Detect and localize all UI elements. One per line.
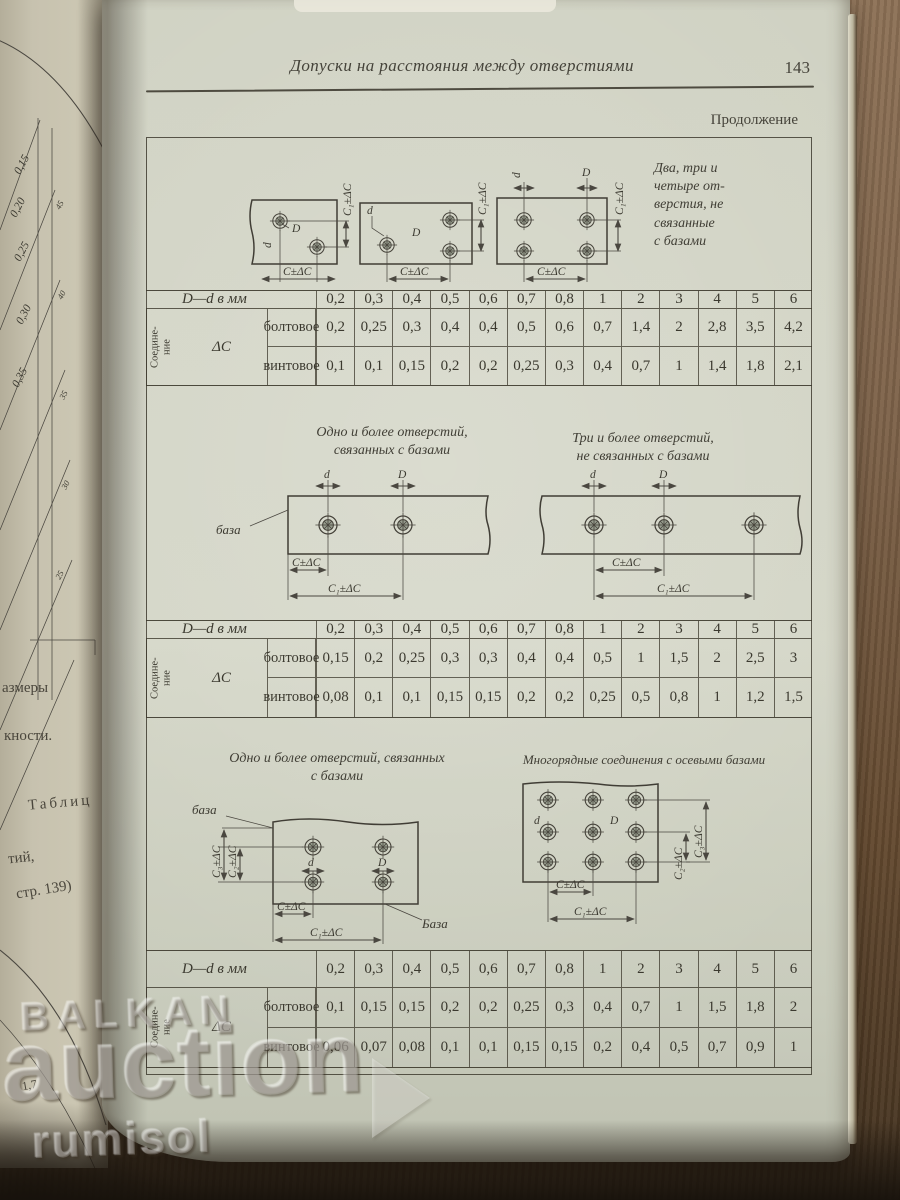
table-cell: 4,2: [774, 309, 812, 347]
table-cell: 1: [774, 1028, 812, 1067]
table-cell: 2: [621, 621, 659, 638]
left-fragment: азмеры: [2, 680, 48, 697]
table-cell: 0,4: [392, 291, 430, 308]
table-cell: 0,5: [659, 1028, 697, 1067]
table-cell: 1: [659, 988, 697, 1028]
continuation-label: Продолжение: [711, 112, 798, 129]
table-cell: 1,5: [774, 678, 812, 717]
table-cell: 0,3: [430, 639, 468, 678]
table-cell: 6: [774, 621, 812, 638]
dim-D: D: [658, 469, 668, 481]
table-cell: 0,2: [316, 621, 354, 638]
table-cell: 0,1: [392, 678, 430, 717]
table-cell: 5: [736, 291, 774, 308]
table-cell: 1,5: [659, 639, 697, 678]
table-cell: 3: [774, 639, 812, 678]
table-cell: 0,3: [545, 347, 583, 385]
table-cell: 0,7: [621, 988, 659, 1028]
dim-c: C±ΔC: [556, 879, 585, 891]
dim-c2: C₂±ΔC: [227, 845, 239, 878]
table-cell: 2: [621, 951, 659, 987]
table-cell: 0,25: [507, 988, 545, 1028]
dim-c2: C₂±ΔC: [673, 847, 685, 880]
table-cell: 0,8: [545, 951, 583, 987]
header-label: D—d в мм: [146, 621, 316, 638]
table-cell: 0,6: [469, 291, 507, 308]
left-fragment: 1,7: [21, 1077, 38, 1094]
row-values-vint: 0,060,070,080,10,10,150,150,20,40,50,70,…: [316, 1028, 812, 1067]
table-cell: 0,2: [354, 639, 392, 678]
table-cell: 0,2: [430, 988, 468, 1028]
table-cell: 4: [698, 951, 736, 987]
previous-page-diagram: 0,15 0,20 0,25 0,30 0,35 45 40 35 30 25: [0, 0, 108, 1168]
table-cell: 5: [736, 621, 774, 638]
table-cell: 0,6: [545, 309, 583, 347]
table-cell: 0,3: [392, 309, 430, 347]
dim-D: D: [291, 223, 301, 235]
base-cap-label: База: [421, 916, 448, 931]
dim-c1: C₁±ΔC: [328, 583, 361, 595]
dim-c1: C₁±ΔC: [310, 927, 343, 939]
table-cell: 6: [774, 951, 812, 987]
dim-c1: C₁±ΔC: [342, 183, 354, 216]
table-cell: 0,15: [469, 678, 507, 717]
header-values: 0,20,30,40,50,60,70,8123456: [316, 291, 812, 308]
table-cell: 3,5: [736, 309, 774, 347]
table-cell: 3: [659, 291, 697, 308]
table-cell: 0,4: [430, 309, 468, 347]
caption-section2-right: Три и более отверстий, не связанных с ба…: [528, 430, 758, 466]
table-cell: 0,25: [507, 347, 545, 385]
base-label: база: [216, 522, 241, 537]
table-cell: 0,2: [316, 309, 354, 347]
table-cell: 0,2: [583, 1028, 621, 1067]
table-cell: 0,2: [316, 951, 354, 987]
table-cell: 0,4: [545, 639, 583, 678]
book-fore-edge: [848, 14, 857, 1144]
table-cell: 0,1: [316, 347, 354, 385]
table-cell: 0,2: [469, 988, 507, 1028]
row-label-vint: винтовое: [268, 1028, 316, 1067]
table-cell: 1: [583, 951, 621, 987]
table-cell: 0,4: [392, 951, 430, 987]
tolerance-table-1: D—d в мм 0,20,30,40,50,60,70,8123456 Сое…: [146, 290, 812, 386]
table-cell: 1,4: [621, 309, 659, 347]
dim-c1: C₁±ΔC: [477, 182, 489, 215]
diagram-four-holes-two-bases: база База d D C₂±ΔC C₃±ΔC C±ΔC C₁±ΔC: [178, 792, 508, 948]
table-cell: 0,3: [354, 951, 392, 987]
table-cell: 0,7: [698, 1028, 736, 1067]
diagram-holes-with-base: база d D C±ΔC C₁±ΔC: [188, 468, 508, 614]
table-body: Соедине- ние болтовое ΔC 0,150,20,250,30…: [146, 639, 812, 717]
table-cell: 5: [736, 951, 774, 987]
table-cell: 0,3: [354, 291, 392, 308]
header-values: 0,20,30,40,50,60,70,8123456: [316, 621, 812, 638]
dim-d: d: [308, 857, 314, 869]
table-cell: 0,8: [545, 621, 583, 638]
header-label: D—d в мм: [146, 951, 316, 987]
table-cell: 0,6: [469, 951, 507, 987]
table-cell: 0,1: [316, 988, 354, 1028]
table-cell: 0,2: [316, 291, 354, 308]
table-cell: 0,8: [659, 678, 697, 717]
table-cell: 0,1: [469, 1028, 507, 1067]
table-cell: 1,8: [736, 988, 774, 1028]
table-cell: 0,1: [354, 678, 392, 717]
table-cell: 0,3: [469, 639, 507, 678]
table-cell: 0,15: [316, 639, 354, 678]
caption-section1: Два, три и четыре от- верстия, не связан…: [654, 160, 789, 251]
table-cell: 0,4: [392, 621, 430, 638]
caption-section3-right: Многорядные соединения с осевыми базами: [494, 752, 794, 769]
table-cell: 0,15: [354, 988, 392, 1028]
table-cell: 0,15: [392, 988, 430, 1028]
table-cell: 0,1: [354, 347, 392, 385]
table-cell: 2: [698, 639, 736, 678]
left-fragment: кности.: [4, 728, 52, 745]
table-cell: 0,15: [392, 347, 430, 385]
table-cell: 0,8: [545, 291, 583, 308]
table-cell: 0,2: [430, 347, 468, 385]
table-cell: 0,4: [507, 639, 545, 678]
header-rule: [146, 86, 814, 93]
left-tick: 0,15: [12, 153, 32, 177]
table-cell: 2,1: [774, 347, 812, 385]
left-small-tick: 35: [56, 389, 69, 402]
left-fragment: тий,: [7, 849, 35, 869]
table-cell: 0,08: [316, 678, 354, 717]
dim-c: C±ΔC: [277, 901, 306, 913]
row-values-vint: 0,080,10,10,150,150,20,20,250,50,811,21,…: [316, 678, 812, 717]
delta-c-label: ΔC: [176, 639, 268, 717]
caption-section3-left: Одно и более отверстий, связанных с база…: [192, 750, 482, 786]
table-cell: 2,8: [698, 309, 736, 347]
delta-c-label: ΔC: [176, 988, 268, 1067]
table-cell: 0,9: [736, 1028, 774, 1067]
table-cell: 0,7: [583, 309, 621, 347]
page-number: 143: [785, 58, 811, 78]
table-cell: 0,15: [507, 1028, 545, 1067]
table-cell: 2: [659, 309, 697, 347]
table-header-row: D—d в мм 0,20,30,40,50,60,70,8123456: [146, 951, 812, 988]
dim-d: d: [324, 469, 330, 481]
dim-D: D: [411, 227, 421, 239]
group-label: Соедине- ние: [146, 309, 176, 385]
table-cell: 1: [583, 621, 621, 638]
dim-c: C±ΔC: [292, 557, 321, 569]
group-label: Соедине- ние: [146, 639, 176, 717]
table-cell: 3: [659, 951, 697, 987]
table-cell: 0,4: [469, 309, 507, 347]
table-cell: 0,7: [507, 621, 545, 638]
row-label-bolt: болтовое: [268, 309, 316, 347]
book-photo: { "page": { "running_title": "Допуски на…: [0, 0, 900, 1200]
dim-c: C±ΔC: [283, 266, 312, 278]
dim-D: D: [609, 815, 619, 827]
table-cell: 0,7: [621, 347, 659, 385]
table-cell: 0,3: [545, 988, 583, 1028]
table-cell: 0,5: [583, 639, 621, 678]
table-cell: 6: [774, 291, 812, 308]
dim-d: d: [511, 172, 523, 178]
table-cell: 0,15: [430, 678, 468, 717]
row-values-bolt: 0,10,150,150,20,20,250,30,40,711,51,82: [316, 988, 812, 1028]
table-cell: 2: [621, 291, 659, 308]
header-label: D—d в мм: [146, 291, 316, 308]
table-header-row: D—d в мм 0,20,30,40,50,60,70,8123456: [146, 621, 812, 639]
table-cell: 1,2: [736, 678, 774, 717]
page-top-edge: [294, 0, 556, 12]
dim-c3: C₃±ΔC: [211, 845, 223, 878]
left-small-tick: 30: [58, 478, 72, 492]
table-cell: 0,2: [507, 678, 545, 717]
group-label: Соедине- ние: [146, 988, 176, 1067]
table-cell: 0,4: [583, 347, 621, 385]
caption-section2-left: Одно и более отверстий, связанных с база…: [282, 424, 502, 460]
diagram-holes-no-base: D d C±ΔC C₁±ΔC d D C±ΔC C₁±ΔC d: [242, 148, 652, 296]
row-values-vint: 0,10,10,150,20,20,250,30,40,711,41,82,1: [316, 347, 812, 385]
table-cell: 1,5: [698, 988, 736, 1028]
header-values: 0,20,30,40,50,60,70,8123456: [316, 951, 812, 987]
row-label-vint: винтовое: [268, 678, 316, 717]
table-cell: 0,7: [507, 951, 545, 987]
table-cell: 0,25: [583, 678, 621, 717]
table-cell: 1: [621, 639, 659, 678]
dim-c3: C₃±ΔC: [693, 825, 705, 858]
table-cell: 0,4: [621, 1028, 659, 1067]
table-cell: 1,4: [698, 347, 736, 385]
table-cell: 1: [583, 291, 621, 308]
table-cell: 0,25: [354, 309, 392, 347]
table-cell: 0,08: [392, 1028, 430, 1067]
book-page: Допуски на расстояния между отверстиями …: [102, 0, 850, 1162]
delta-c-label: ΔC: [176, 309, 268, 385]
tolerance-table-2: D—d в мм 0,20,30,40,50,60,70,8123456 Сое…: [146, 620, 812, 718]
dim-c1: C₁±ΔC: [574, 906, 607, 918]
running-title: Допуски на расстояния между отверстиями: [162, 56, 762, 76]
dim-c: C±ΔC: [537, 266, 566, 278]
dim-d: d: [367, 205, 373, 217]
left-tick: 0,35: [10, 366, 30, 390]
table-cell: 0,3: [354, 621, 392, 638]
table-cell: 0,5: [430, 951, 468, 987]
diagram-three-holes-no-base: d D C±ΔC C₁±ΔC: [532, 468, 812, 614]
table-cell: 0,07: [354, 1028, 392, 1067]
table-cell: 0,5: [507, 309, 545, 347]
table-cell: 1: [659, 347, 697, 385]
dim-D: D: [377, 857, 387, 869]
dim-D: D: [397, 469, 407, 481]
dim-c1: C₁±ΔC: [614, 182, 626, 215]
row-label-bolt: болтовое: [268, 988, 316, 1028]
base-label: база: [192, 802, 217, 817]
left-small-tick: 45: [53, 199, 66, 211]
table-cell: 2: [774, 988, 812, 1028]
table-cell: 0,5: [430, 291, 468, 308]
tolerance-table-3: D—d в мм 0,20,30,40,50,60,70,8123456 Сое…: [146, 950, 812, 1068]
dim-c: C±ΔC: [400, 266, 429, 278]
table-cell: 3: [659, 621, 697, 638]
dim-D: D: [581, 167, 591, 179]
table-cell: 0,6: [469, 621, 507, 638]
row-label-bolt: болтовое: [268, 639, 316, 678]
table-cell: 0,2: [469, 347, 507, 385]
table-cell: 4: [698, 621, 736, 638]
row-values-bolt: 0,150,20,250,30,30,40,40,511,522,53: [316, 639, 812, 678]
table-cell: 0,2: [545, 678, 583, 717]
previous-page-edge: 0,15 0,20 0,25 0,30 0,35 45 40 35 30 25 …: [0, 0, 108, 1168]
table-cell: 0,7: [507, 291, 545, 308]
left-small-tick: 40: [55, 288, 68, 301]
diagram-multirow-joints: d D C±ΔC C₁±ΔC C₂±ΔC C₃±ΔC: [498, 772, 810, 948]
table-cell: 0,15: [545, 1028, 583, 1067]
table-cell: 1,8: [736, 347, 774, 385]
dim-c1: C₁±ΔC: [657, 583, 690, 595]
row-label-vint: винтовое: [268, 347, 316, 385]
dim-d: d: [590, 469, 596, 481]
table-cell: 0,5: [430, 621, 468, 638]
table-cell: 0,5: [621, 678, 659, 717]
table-cell: 0,4: [583, 988, 621, 1028]
left-tick: 0,30: [14, 303, 34, 327]
dim-d: d: [534, 815, 540, 827]
table-cell: 4: [698, 291, 736, 308]
table-cell: 0,06: [316, 1028, 354, 1067]
left-tick: 0,25: [12, 240, 32, 264]
dim-d: d: [262, 242, 274, 248]
table-body: Соедине- ние болтовое ΔC 0,20,250,30,40,…: [146, 309, 812, 385]
table-cell: 0,1: [430, 1028, 468, 1067]
table-cell: 0,25: [392, 639, 430, 678]
table-cell: 1: [698, 678, 736, 717]
dim-c: C±ΔC: [612, 557, 641, 569]
row-values-bolt: 0,20,250,30,40,40,50,60,71,422,83,54,2: [316, 309, 812, 347]
table-header-row: D—d в мм 0,20,30,40,50,60,70,8123456: [146, 291, 812, 309]
table-body: Соедине- ние болтовое ΔC 0,10,150,150,20…: [146, 988, 812, 1067]
table-cell: 2,5: [736, 639, 774, 678]
